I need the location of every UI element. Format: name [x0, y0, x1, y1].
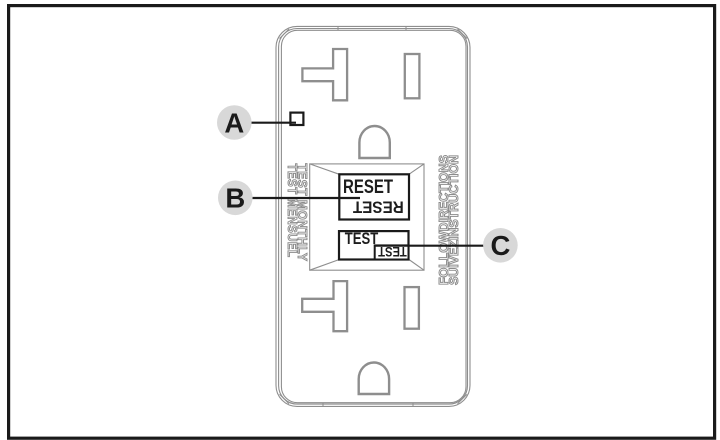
- svg-text:C: C: [490, 230, 510, 261]
- svg-text:TEST: TEST: [345, 230, 378, 248]
- svg-text:A: A: [224, 107, 244, 138]
- svg-text:RESET: RESET: [343, 176, 393, 198]
- svg-text:SUIVEZINSTRUCTION: SUIVEZINSTRUCTION: [446, 155, 461, 285]
- svg-text:B: B: [225, 183, 245, 214]
- svg-text:RESET: RESET: [353, 197, 404, 215]
- svg-text:TEST MENSUEL: TEST MENSUEL: [285, 164, 300, 258]
